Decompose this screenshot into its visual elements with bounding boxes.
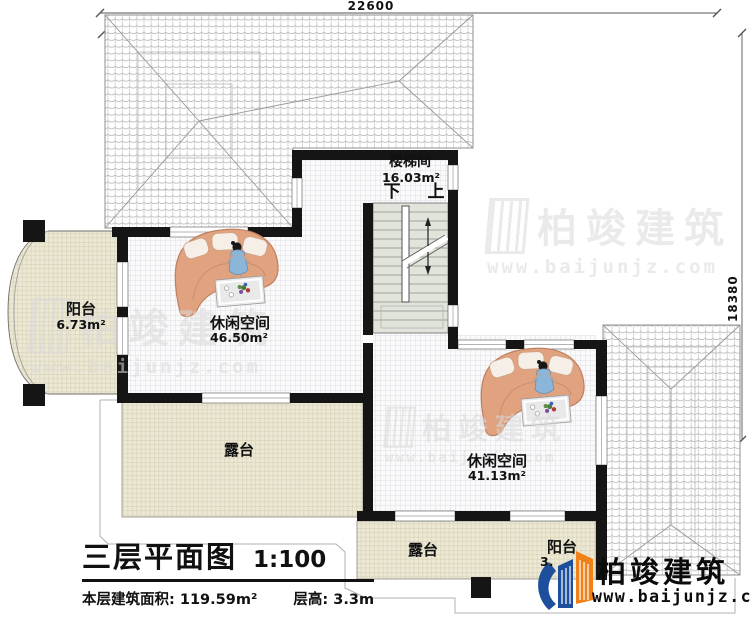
column	[471, 577, 491, 598]
floor-height-label: 层高:	[293, 592, 328, 608]
stairs	[373, 203, 450, 333]
stair-up-label: 上	[428, 184, 445, 202]
room-area-leisure-a: 46.50m²	[210, 331, 268, 344]
balcony-left-shape	[8, 231, 118, 394]
stair-rail	[402, 206, 409, 302]
room-label-balcony-left: 阳台	[66, 302, 96, 318]
column	[23, 220, 45, 242]
plan-subtitle: 本层建筑面积: 119.59m² 层高: 3.3m	[82, 588, 374, 609]
plan-title-row: 三层平面图 1:100	[82, 534, 374, 582]
brand-logo-name: 柏竣建筑	[597, 549, 729, 591]
plan-title: 三层平面图	[82, 534, 237, 576]
dimension-right: 18380	[727, 275, 740, 322]
floor-plan-page: 柏竣建筑 www.baijunjz.com 柏竣建筑 www.baijunjz.…	[0, 0, 750, 621]
room-label-stairwell: 楼梯间	[389, 155, 431, 170]
column	[23, 384, 45, 406]
stair-down-label: 下	[384, 184, 401, 202]
floor-area-value: 119.59m²	[180, 592, 257, 608]
room-area-balcony-bottom: 3.	[540, 555, 553, 568]
brand-logo-url: www.baijunjz.com	[592, 587, 750, 606]
room-area-leisure-b: 41.13m²	[468, 469, 526, 482]
floor-area-label: 本层建筑面积:	[82, 592, 175, 608]
roof-right	[603, 325, 740, 575]
dimension-top: 22600	[348, 0, 395, 13]
room-label-terrace-left: 露台	[224, 443, 254, 459]
title-block: 三层平面图 1:100 本层建筑面积: 119.59m² 层高: 3.3m	[82, 534, 374, 609]
floor-plan-drawing	[0, 0, 750, 621]
coffee-table	[215, 276, 265, 307]
plan-scale: 1:100	[253, 547, 326, 573]
floor-height-value: 3.3m	[333, 592, 374, 608]
room-area-balcony-left: 6.73m²	[56, 318, 105, 331]
room-label-terrace-bottom: 露台	[408, 543, 438, 559]
